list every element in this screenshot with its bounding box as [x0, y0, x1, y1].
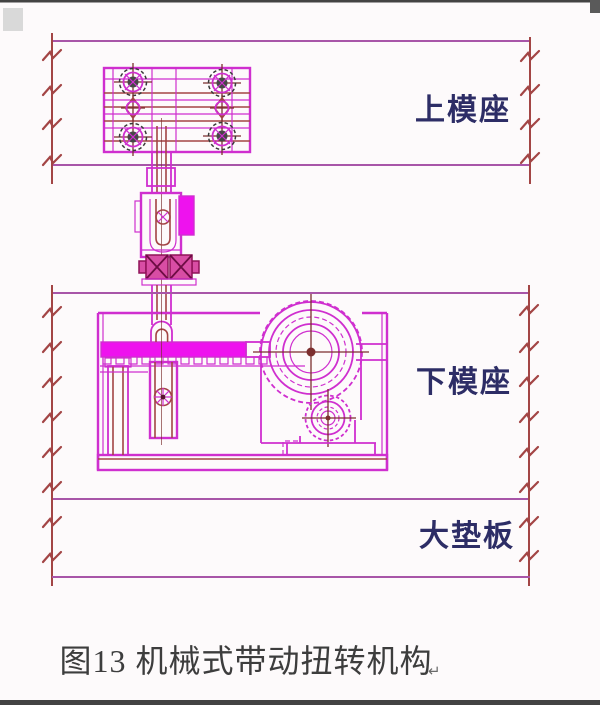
break-line-left-lower — [43, 285, 61, 586]
label-backing-plate: 大垫板 — [419, 520, 515, 553]
bushing-slot-outer — [150, 199, 176, 252]
gear-crosshair — [253, 294, 369, 410]
small-gear — [261, 389, 376, 455]
upper-die-band: 上模座 — [43, 33, 539, 184]
pinion-crosshair — [302, 389, 356, 447]
figure-caption-group: 图13 机械式带动扭转机构 ↵ — [59, 643, 440, 680]
bushing-key-block — [179, 196, 194, 235]
dowel-pin-icon — [121, 95, 145, 121]
nut-washer — [142, 279, 196, 285]
rack — [101, 342, 387, 364]
bottom-edge-strip — [0, 700, 600, 705]
adjust-screw-icon — [154, 388, 172, 406]
housing-bottom-plate — [98, 455, 387, 470]
top-left-patch — [3, 8, 23, 31]
dowel-pin-icon — [210, 95, 234, 121]
mounting-bolt-icon — [114, 118, 152, 156]
top-right-chip — [590, 0, 600, 13]
upper-die-plate — [104, 63, 250, 156]
support-post — [108, 366, 128, 455]
backing-plate-band: 大垫板 — [52, 520, 530, 577]
center-guide-column — [150, 300, 177, 445]
top-edge-strip — [0, 0, 600, 3]
cad-figure: 上模座 — [0, 0, 600, 705]
label-lower-die: 下模座 — [416, 365, 512, 399]
rack-bar — [101, 342, 246, 357]
break-line-right-upper — [521, 37, 539, 184]
screenshot-root: 上模座 — [0, 0, 600, 705]
figure-caption: 图13 机械式带动扭转机构 — [59, 643, 432, 679]
guide-bushing — [135, 193, 194, 257]
break-line-right-lower — [520, 285, 538, 586]
break-line-left-upper — [43, 33, 61, 184]
mounting-bolt-icon — [203, 117, 241, 155]
lock-nuts — [139, 255, 199, 325]
label-upper-die: 上模座 — [415, 93, 511, 127]
return-mark-icon: ↵ — [428, 662, 441, 680]
